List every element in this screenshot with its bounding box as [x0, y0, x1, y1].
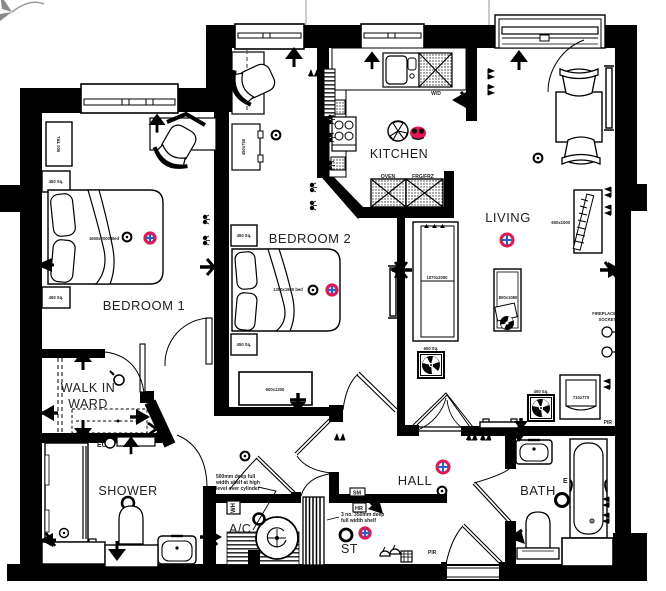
svg-text:BEDROOM 2: BEDROOM 2	[269, 231, 352, 246]
svg-text:450x750: 450x750	[241, 138, 246, 155]
svg-text:HALL: HALL	[398, 473, 433, 488]
svg-text:450 Sq.: 450 Sq.	[534, 389, 549, 394]
svg-text:900 TRL: 900 TRL	[56, 135, 61, 152]
svg-text:600x1000: 600x1000	[551, 220, 570, 225]
svg-text:PIR: PIR	[428, 550, 437, 556]
svg-text:WH: WH	[231, 503, 237, 513]
svg-text:800x1080: 800x1080	[499, 295, 518, 300]
svg-text:WALK IN: WALK IN	[61, 381, 115, 395]
svg-text:1070x2000: 1070x2000	[427, 275, 449, 280]
svg-text:SOCKET: SOCKET	[599, 317, 617, 322]
svg-text:ST: ST	[341, 542, 358, 556]
svg-text:450 Sq.: 450 Sq.	[49, 295, 64, 300]
svg-text:450 Sq.: 450 Sq.	[237, 342, 252, 347]
svg-text:KITCHEN: KITCHEN	[370, 147, 428, 161]
svg-text:LIVING: LIVING	[485, 210, 531, 225]
svg-text:E: E	[563, 478, 568, 485]
svg-text:1350x1900 bed: 1350x1900 bed	[273, 287, 303, 292]
svg-text:W/D: W/D	[431, 91, 441, 97]
svg-text:600x1200: 600x1200	[266, 387, 285, 392]
svg-text:450 Sq.: 450 Sq.	[49, 179, 64, 184]
svg-text:BEDROOM 1: BEDROOM 1	[103, 298, 186, 313]
svg-text:450 Sq.: 450 Sq.	[237, 233, 252, 238]
svg-text:PIR: PIR	[604, 420, 613, 426]
svg-text:650 Sq.: 650 Sq.	[424, 346, 439, 351]
svg-text:SM: SM	[353, 491, 362, 497]
svg-text:level over cylinder: level over cylinder	[216, 486, 260, 492]
svg-text:full width shelf: full width shelf	[341, 518, 376, 524]
svg-text:BATH: BATH	[520, 483, 556, 498]
svg-text:1600x2000 Bed: 1600x2000 Bed	[89, 236, 119, 241]
svg-text:710x770: 710x770	[573, 395, 590, 400]
svg-text:HR: HR	[355, 506, 363, 512]
svg-text:FIREPLACE: FIREPLACE	[592, 311, 616, 316]
